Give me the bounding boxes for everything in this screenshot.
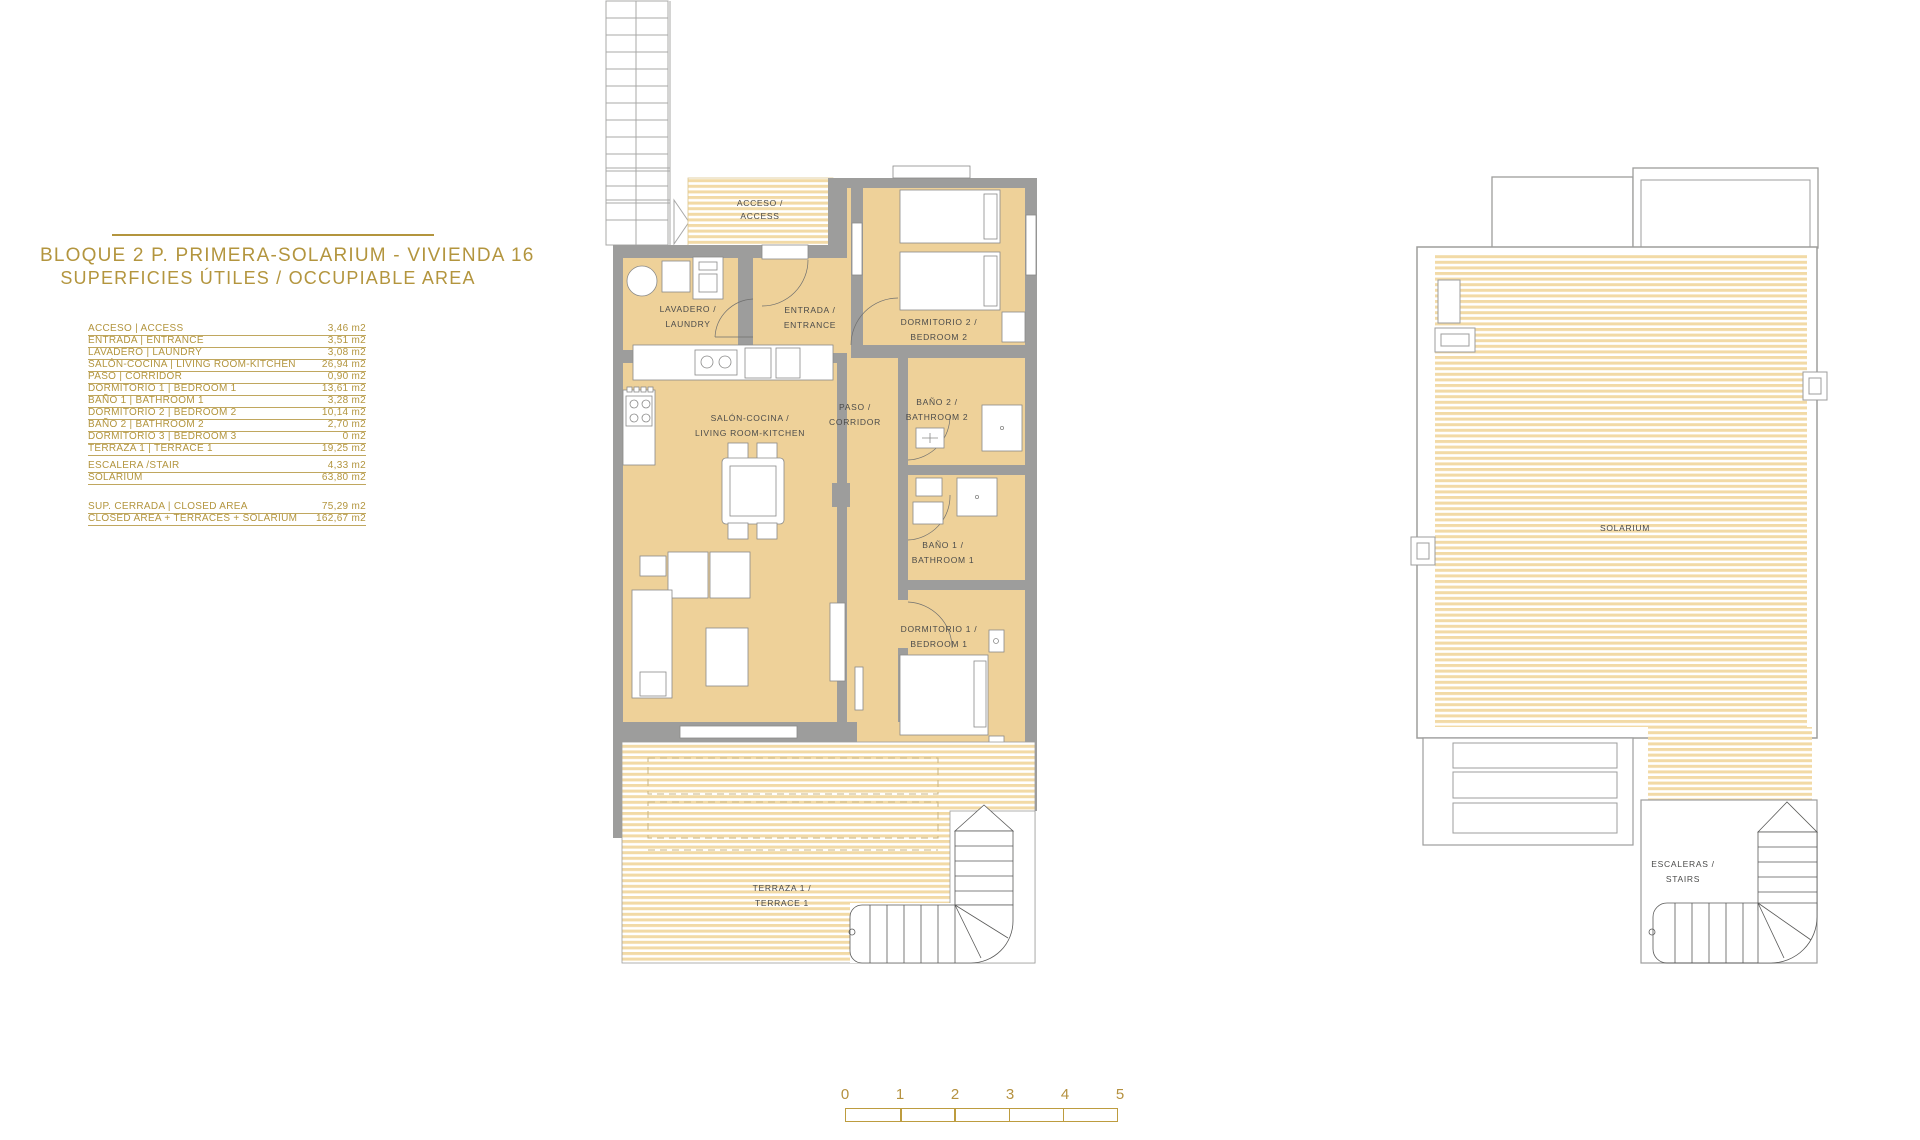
svg-text:TERRACE 1: TERRACE 1 (755, 898, 809, 908)
solarium-deck-extension (1648, 727, 1812, 800)
scale-bar: 0 1 2 3 4 5 (845, 1086, 1120, 1128)
row-value: 162,67 m2 (316, 514, 366, 525)
area-table-totals-group: SUP. CERRADA | CLOSED AREA75,29 m2 CLOSE… (88, 502, 366, 526)
svg-text:BATHROOM 1: BATHROOM 1 (912, 555, 975, 565)
row-value: 3,28 m2 (328, 396, 366, 407)
svg-text:CORRIDOR: CORRIDOR (829, 417, 881, 427)
salon-window (680, 726, 797, 738)
svg-text:BEDROOM 1: BEDROOM 1 (910, 639, 967, 649)
row-label: BAÑO 1 | BATHROOM 1 (88, 396, 204, 407)
row-value: 26,94 m2 (322, 360, 366, 371)
dining-table (722, 458, 784, 524)
dorm2-side-window (1026, 215, 1036, 275)
nightstand (989, 630, 1004, 652)
dining-chair (728, 443, 748, 459)
dorm2-door-pocket (852, 223, 862, 275)
plan-title: BLOQUE 2 P. PRIMERA-SOLARIUM - VIVIENDA … (40, 244, 496, 267)
label-solarium: SOLARIUM (1600, 523, 1650, 533)
sink (913, 502, 943, 524)
dorm2-window-sill (893, 166, 970, 178)
scale-tick-4: 4 (1061, 1086, 1069, 1103)
row-label: SOLARIUM (88, 473, 143, 484)
water-heater (627, 266, 657, 296)
title-rule (112, 234, 434, 236)
row-label: SUP. CERRADA | CLOSED AREA (88, 502, 248, 513)
scale-ruler (845, 1108, 1118, 1122)
entry-door-opening (762, 245, 808, 259)
armchair (710, 552, 750, 598)
row-label: CLOSED AREA + TERRACES + SOLARIUM (88, 514, 297, 525)
row-value: 3,08 m2 (328, 348, 366, 359)
table-total-row: CLOSED AREA + TERRACES + SOLARIUM162,67 … (88, 514, 366, 526)
terrace (622, 742, 1035, 963)
row-label: ACCESO | ACCESS (88, 324, 183, 335)
table-row: TERRAZA 1 | TERRACE 119,25 m2 (88, 444, 366, 456)
solarium-deck (1435, 255, 1807, 727)
scale-tick-1: 1 (896, 1086, 904, 1103)
svg-text:ENTRANCE: ENTRANCE (784, 320, 836, 330)
svg-text:STAIRS: STAIRS (1666, 874, 1700, 884)
plan-subtitle: SUPERFICIES ÚTILES / OCCUPIABLE AREA (40, 267, 496, 290)
label-salon: SALÓN-COCINA / (711, 413, 790, 423)
row-value: 19,25 m2 (322, 444, 366, 455)
area-table-main-group: ACCESO | ACCESS3,46 m2 ENTRADA | ENTRANC… (88, 324, 366, 456)
row-label: DORMITORIO 1 | BEDROOM 1 (88, 384, 237, 395)
label-dormitorio1: DORMITORIO 1 / (901, 624, 978, 634)
row-value: 10,14 m2 (322, 408, 366, 419)
floorplan-apartment: ACCESO / ACCESS LAVADERO / LAUNDRY ENTRA… (600, 0, 1045, 975)
table-row: SOLARIUM63,80 m2 (88, 473, 366, 485)
toilet (916, 478, 942, 496)
svg-text:LIVING ROOM-KITCHEN: LIVING ROOM-KITCHEN (695, 428, 805, 438)
roof-boxes (1492, 168, 1818, 248)
row-value: 0 m2 (343, 432, 366, 443)
row-label: LAVADERO | LAUNDRY (88, 348, 202, 359)
row-value: 0,90 m2 (328, 372, 366, 383)
row-label: DORMITORIO 2 | BEDROOM 2 (88, 408, 237, 419)
label-lavadero: LAVADERO / (660, 304, 717, 314)
slat-box (1423, 738, 1633, 845)
coffee-table (706, 628, 748, 686)
label-terraza: TERRAZA 1 / (753, 883, 812, 893)
floorplan-solarium: SOLARIUM ESCALERAS / STAIRS (1405, 160, 1830, 970)
dorm1-closet-slit (855, 667, 863, 710)
tv-bench (830, 603, 845, 681)
row-label: ESCALERA /STAIR (88, 461, 180, 472)
row-label: BAÑO 2 | BATHROOM 2 (88, 420, 204, 431)
access-stair-tower (606, 1, 689, 245)
area-table: ACCESO | ACCESS3,46 m2 ENTRADA | ENTRANC… (88, 324, 366, 526)
scale-tick-3: 3 (1006, 1086, 1014, 1103)
label-paso: PASO / (839, 402, 871, 412)
wardrobe (1002, 312, 1025, 342)
area-table-stair-group: ESCALERA /STAIR4,33 m2 SOLARIUM63,80 m2 (88, 461, 366, 485)
dining-chair (757, 443, 777, 459)
armchair (668, 552, 708, 598)
row-value: 2,70 m2 (328, 420, 366, 431)
svg-text:BEDROOM 2: BEDROOM 2 (910, 332, 967, 342)
svg-text:ACCESS: ACCESS (740, 211, 779, 221)
row-label: SALÓN-COCINA | LIVING ROOM-KITCHEN (88, 360, 296, 371)
row-label: DORMITORIO 3 | BEDROOM 3 (88, 432, 237, 443)
stair-direction-arrow (674, 200, 689, 244)
row-label: PASO | CORRIDOR (88, 372, 182, 383)
svg-text:BATHROOM 2: BATHROOM 2 (906, 412, 969, 422)
dining-chair (728, 523, 748, 539)
label-bano1: BAÑO 1 / (922, 540, 964, 550)
side-table (640, 556, 666, 576)
row-value: 4,33 m2 (328, 461, 366, 472)
title-block: BLOQUE 2 P. PRIMERA-SOLARIUM - VIVIENDA … (40, 234, 496, 290)
label-dormitorio2: DORMITORIO 2 / (901, 317, 978, 327)
scale-tick-5: 5 (1116, 1086, 1124, 1103)
row-value: 13,61 m2 (322, 384, 366, 395)
label-acceso: ACCESO / (737, 198, 783, 208)
laundry-counter (662, 261, 690, 292)
scale-tick-0: 0 (841, 1086, 849, 1103)
label-bano2: BAÑO 2 / (916, 397, 958, 407)
label-entrada: ENTRADA / (784, 305, 835, 315)
row-value: 75,29 m2 (322, 502, 366, 513)
scale-tick-2: 2 (951, 1086, 959, 1103)
row-value: 63,80 m2 (322, 473, 366, 484)
dining-chair (757, 523, 777, 539)
row-label: ENTRADA | ENTRANCE (88, 336, 204, 347)
svg-text:LAUNDRY: LAUNDRY (665, 319, 710, 329)
label-escaleras: ESCALERAS / (1651, 859, 1714, 869)
row-label: TERRAZA 1 | TERRACE 1 (88, 444, 213, 455)
row-value: 3,51 m2 (328, 336, 366, 347)
row-value: 3,46 m2 (328, 324, 366, 335)
